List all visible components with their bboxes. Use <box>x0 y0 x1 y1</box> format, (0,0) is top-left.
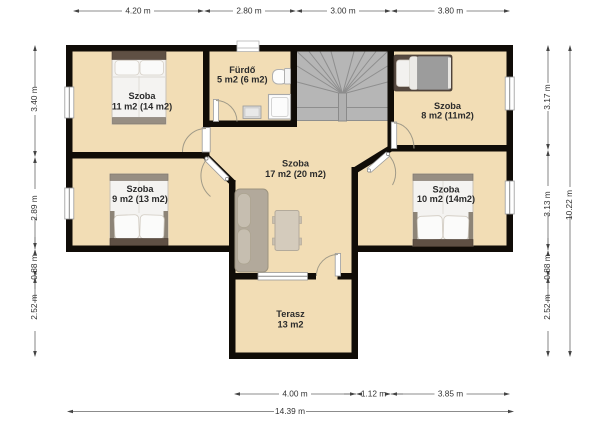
svg-text:2.80 m: 2.80 m <box>236 6 261 16</box>
svg-text:4.00 m: 4.00 m <box>282 389 307 399</box>
svg-text:Terasz: Terasz <box>276 309 305 319</box>
svg-text:2.52 m: 2.52 m <box>29 294 39 319</box>
svg-text:3.13 m: 3.13 m <box>542 191 552 216</box>
svg-text:Szoba: Szoba <box>432 185 460 195</box>
svg-text:10 m2 (14m2): 10 m2 (14m2) <box>417 194 475 204</box>
svg-text:3.40 m: 3.40 m <box>29 86 39 111</box>
svg-text:17 m2 (20 m2): 17 m2 (20 m2) <box>265 169 326 179</box>
svg-text:3.17 m: 3.17 m <box>542 84 552 109</box>
svg-text:4.20 m: 4.20 m <box>125 6 150 16</box>
svg-text:Szoba: Szoba <box>282 159 310 169</box>
svg-text:3.00 m: 3.00 m <box>330 6 355 16</box>
svg-text:14.39 m: 14.39 m <box>275 406 305 416</box>
svg-text:9 m2 (13 m2): 9 m2 (13 m2) <box>112 194 168 204</box>
svg-text:2.89 m: 2.89 m <box>29 195 39 220</box>
svg-text:Szoba: Szoba <box>128 91 156 101</box>
svg-text:Szoba: Szoba <box>126 184 154 194</box>
svg-text:5 m2 (6 m2): 5 m2 (6 m2) <box>217 75 268 85</box>
svg-text:3.80 m: 3.80 m <box>438 6 463 16</box>
svg-text:3.85 m: 3.85 m <box>438 389 463 399</box>
svg-text:Szoba: Szoba <box>434 101 462 111</box>
svg-text:8 m2 (11m2): 8 m2 (11m2) <box>421 111 474 121</box>
svg-text:10.22 m: 10.22 m <box>564 190 574 220</box>
svg-text:Fürdő: Fürdő <box>229 65 255 75</box>
svg-text:0.88 m: 0.88 m <box>542 254 552 279</box>
svg-text:1.12 m: 1.12 m <box>361 389 386 399</box>
svg-text:0.88 m: 0.88 m <box>29 254 39 279</box>
svg-text:13 m2: 13 m2 <box>277 320 303 330</box>
svg-text:2.52 m: 2.52 m <box>542 294 552 319</box>
svg-text:11 m2 (14 m2): 11 m2 (14 m2) <box>112 102 172 112</box>
